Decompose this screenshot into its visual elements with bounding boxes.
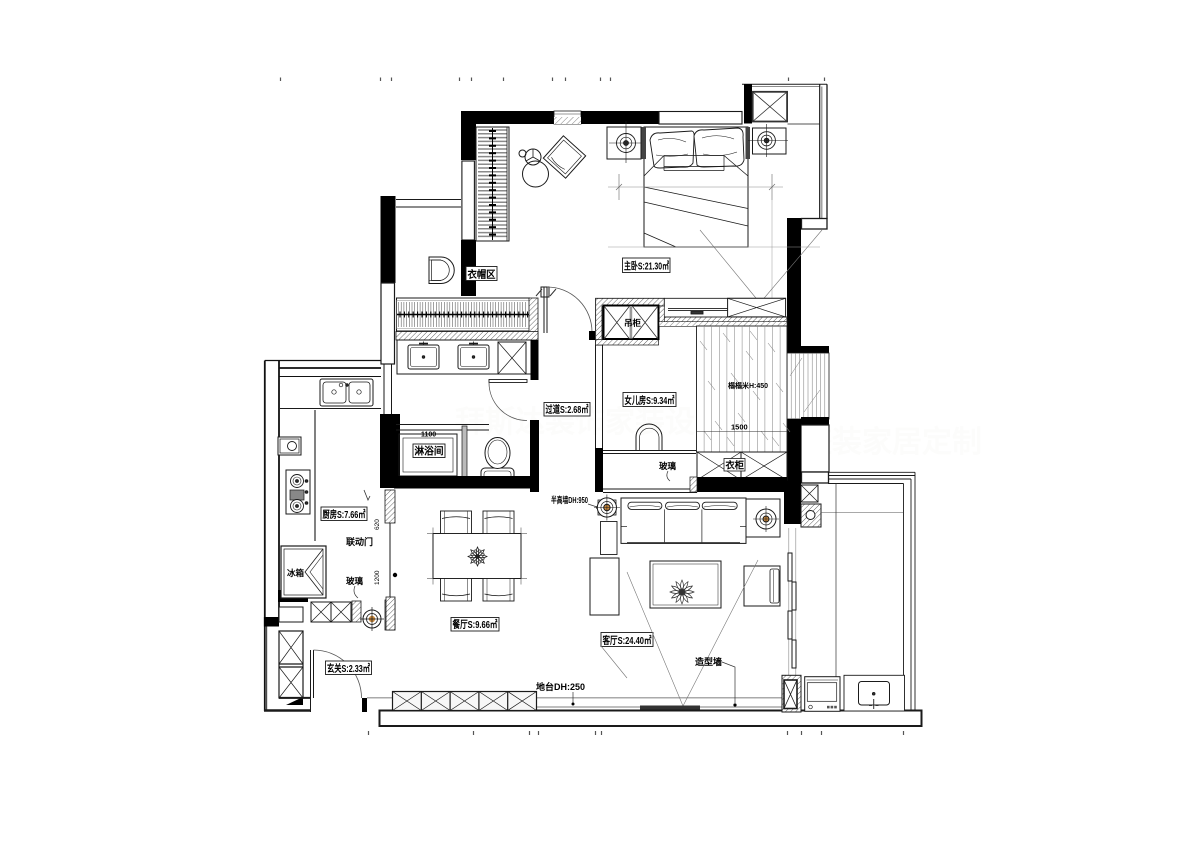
svg-text:榻榻米H:450: 榻榻米H:450	[727, 381, 768, 390]
svg-text:餐厅S:9.66㎡: 餐厅S:9.66㎡	[452, 618, 498, 631]
svg-text:厨房S:7.66㎡: 厨房S:7.66㎡	[323, 508, 366, 521]
svg-text:吊柜: 吊柜	[624, 318, 641, 328]
svg-text:冰箱: 冰箱	[287, 568, 305, 578]
svg-text:淋浴间: 淋浴间	[415, 445, 444, 458]
svg-text:女儿房S:9.34㎡: 女儿房S:9.34㎡	[625, 394, 675, 407]
svg-text:联动门: 联动门	[346, 536, 373, 547]
svg-text:造型墙: 造型墙	[695, 656, 722, 667]
svg-text:玻璃: 玻璃	[346, 576, 364, 586]
svg-text:过道S:2.68㎡: 过道S:2.68㎡	[546, 403, 589, 416]
svg-text:1100: 1100	[421, 432, 436, 439]
svg-text:半高墙DH:950: 半高墙DH:950	[551, 495, 588, 505]
svg-text:客厅S:24.40㎡: 客厅S:24.40㎡	[602, 634, 652, 647]
svg-text:1200: 1200	[374, 570, 381, 585]
svg-text:1500: 1500	[731, 423, 748, 432]
svg-text:衣帽区: 衣帽区	[468, 268, 496, 281]
svg-text:衣柜: 衣柜	[726, 459, 745, 471]
svg-text:玻璃: 玻璃	[659, 461, 677, 471]
svg-text:地台DH:250: 地台DH:250	[536, 681, 585, 692]
svg-text:620: 620	[374, 519, 381, 530]
svg-text:主卧S:21.30㎡: 主卧S:21.30㎡	[624, 260, 669, 273]
svg-text:玄关S:2.33㎡: 玄关S:2.33㎡	[327, 662, 370, 675]
